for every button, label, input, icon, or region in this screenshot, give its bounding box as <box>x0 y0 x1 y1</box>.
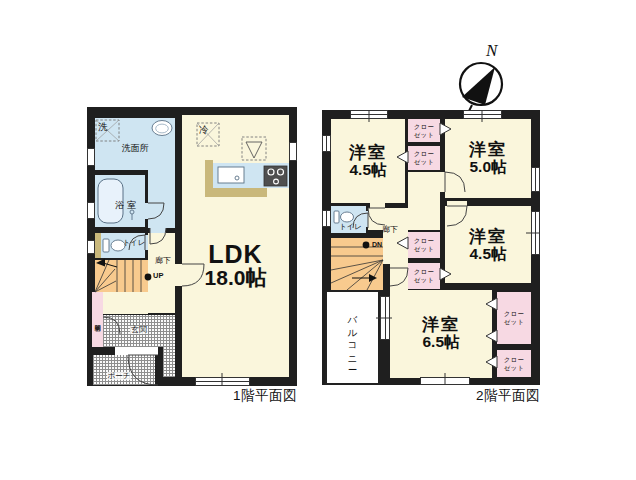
bedroom-ne-label: 洋室 5.0帖 <box>445 124 531 192</box>
toilet-door-gap-2f <box>366 211 368 227</box>
bathroom-label: 浴室 <box>109 201 145 211</box>
hallway-2f-south <box>383 230 408 264</box>
closet-2-label: クローゼット <box>408 146 440 170</box>
closet-1-label: クローゼット <box>408 119 440 142</box>
hallway-label-1f: 廊下 <box>150 257 176 266</box>
toilet-window-2f <box>322 210 331 227</box>
toilet-label-1f: トイレ <box>122 238 146 247</box>
bedroom-s-bottom-window <box>420 377 470 385</box>
toilet-label-2f: トイレ <box>335 222 366 231</box>
floor-plan-page: N <box>0 0 636 480</box>
washroom-label: 洗面所 <box>107 143 163 154</box>
compass-north-label: N <box>486 42 497 60</box>
kitchen-unit <box>213 163 289 188</box>
bedroom-nw-top-window <box>350 110 388 119</box>
washroom-door-gap <box>150 228 166 233</box>
bedroom-ne-top-window <box>463 110 502 119</box>
bedroom-e-door-gap <box>447 201 467 206</box>
floor1-plan: 洗 冷 洗面所 浴室 トイレ 廊下 UP 玄関収納 玄関 ポーチ LDK 18.… <box>87 107 297 386</box>
floor2-caption: 2階平面図 <box>440 387 540 405</box>
bedroom-nw-side-window <box>322 135 331 152</box>
washroom-passage <box>148 170 175 228</box>
bedroom-s-label: 洋室 6.5帖 <box>390 296 492 370</box>
bedroom-nw-door-gap <box>370 203 385 208</box>
washroom-window <box>87 148 95 166</box>
closet-3-label: クローゼット <box>408 232 440 258</box>
closet-6-label: クローゼット <box>497 350 531 377</box>
compass-icon <box>448 36 512 120</box>
toilet-window-1f <box>87 240 95 254</box>
floor2-plan: 洋室 4.5帖 洋室 5.0帖 洋室 4.5帖 洋室 6.5帖 クローゼット ク… <box>322 110 540 385</box>
bath-door-gap <box>145 203 148 219</box>
balcony-label: バルコニー <box>327 298 378 378</box>
bedroom-ne-side-window <box>531 167 540 192</box>
porch-label: ポーチ <box>99 371 139 381</box>
stairs-up-label: UP <box>153 272 163 280</box>
fridge-label: 冷 <box>199 125 209 135</box>
hallway-2f-north <box>408 172 440 208</box>
bedroom-nw-label: 洋室 4.5帖 <box>331 130 405 192</box>
ldk-label: LDK 18.0帖 <box>182 229 289 301</box>
closet-4-label: クローゼット <box>408 263 440 289</box>
closet-5-label: クローゼット <box>497 292 531 344</box>
kitchen-window <box>289 142 297 161</box>
bedroom-e-side-window <box>531 211 540 255</box>
washer-label: 洗 <box>98 122 108 132</box>
ldk-patio-window <box>195 377 250 386</box>
entrance-storage-label: 玄関収納 <box>92 294 103 345</box>
stairs-down-label: DN <box>372 241 382 248</box>
ldk-door-gap <box>175 264 182 286</box>
floor1-caption: 1階平面図 <box>197 387 297 405</box>
staircase-1f <box>95 260 148 292</box>
bathroom-window <box>87 202 95 219</box>
entrance-hall <box>103 292 148 314</box>
balcony-door-window <box>380 296 390 340</box>
bedroom-s-door-gap <box>390 264 408 268</box>
bedroom-e-label: 洋室 4.5帖 <box>445 210 531 280</box>
entrance-label: 玄関 <box>121 325 157 335</box>
front-door-opening <box>115 347 158 355</box>
entrance-genkan-side <box>163 347 175 377</box>
hallway-label-2f: 廊下 <box>377 226 403 235</box>
kitchen-counter-front <box>205 188 267 197</box>
